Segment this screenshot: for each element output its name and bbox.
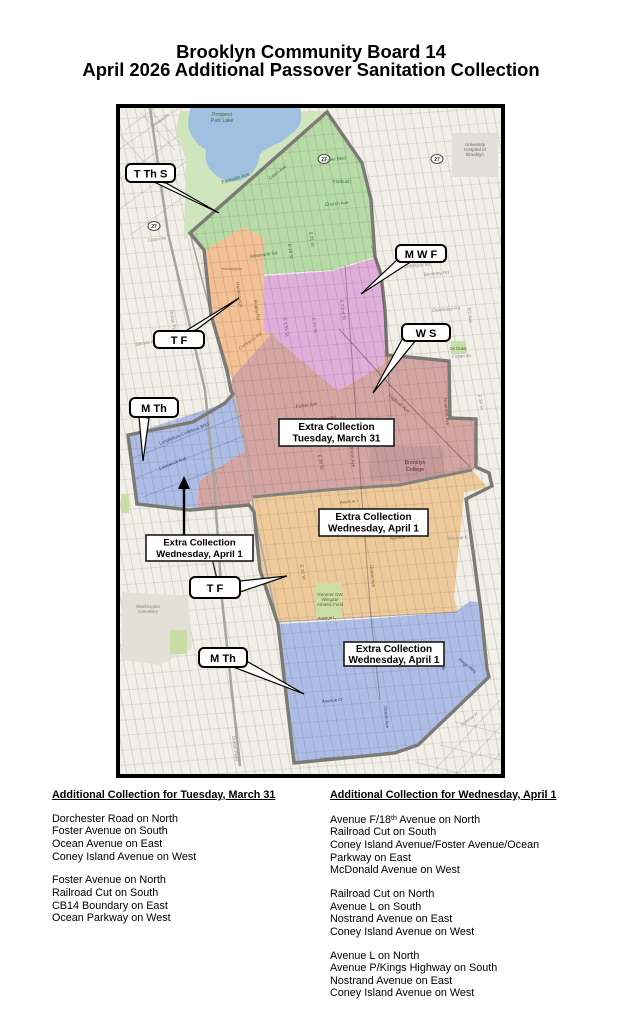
svg-text:Foster Av: Foster Av	[452, 353, 472, 359]
svg-text:Brooklyn: Brooklyn	[405, 460, 426, 466]
svg-text:M Th: M Th	[210, 653, 236, 665]
svg-text:Kensington: Kensington	[222, 266, 242, 271]
svg-text:M Th: M Th	[141, 403, 167, 415]
svg-text:T Th S: T Th S	[134, 169, 168, 181]
svg-text:27: 27	[151, 224, 157, 230]
svg-text:W S: W S	[416, 328, 437, 340]
svg-text:Athletic Field: Athletic Field	[317, 602, 344, 607]
svg-text:Wednesday, April 1: Wednesday, April 1	[156, 549, 243, 560]
svg-text:Park Lake: Park Lake	[211, 118, 234, 124]
svg-text:T F: T F	[207, 583, 224, 595]
svg-text:Extra Collection: Extra Collection	[335, 512, 411, 523]
svg-text:De Dutal: De Dutal	[449, 346, 466, 351]
svg-text:Flatbush: Flatbush	[333, 179, 351, 184]
svg-text:Amersfort: Amersfort	[456, 466, 475, 471]
svg-text:M W F: M W F	[405, 249, 438, 261]
svg-text:Cemetery: Cemetery	[138, 609, 159, 614]
svg-text:Wednesday, April 1: Wednesday, April 1	[349, 655, 440, 666]
svg-text:Tuesday, March 31: Tuesday, March 31	[293, 434, 381, 445]
svg-text:Extra Collection: Extra Collection	[298, 422, 374, 433]
svg-text:T F: T F	[171, 335, 188, 347]
svg-text:Extra Collection: Extra Collection	[163, 538, 236, 549]
svg-text:Extra Collection: Extra Collection	[356, 644, 432, 655]
svg-text:College: College	[406, 467, 424, 473]
svg-text:27: 27	[434, 157, 440, 163]
svg-text:Brooklyn: Brooklyn	[466, 152, 484, 157]
svg-text:Wednesday, April 1: Wednesday, April 1	[328, 524, 419, 535]
